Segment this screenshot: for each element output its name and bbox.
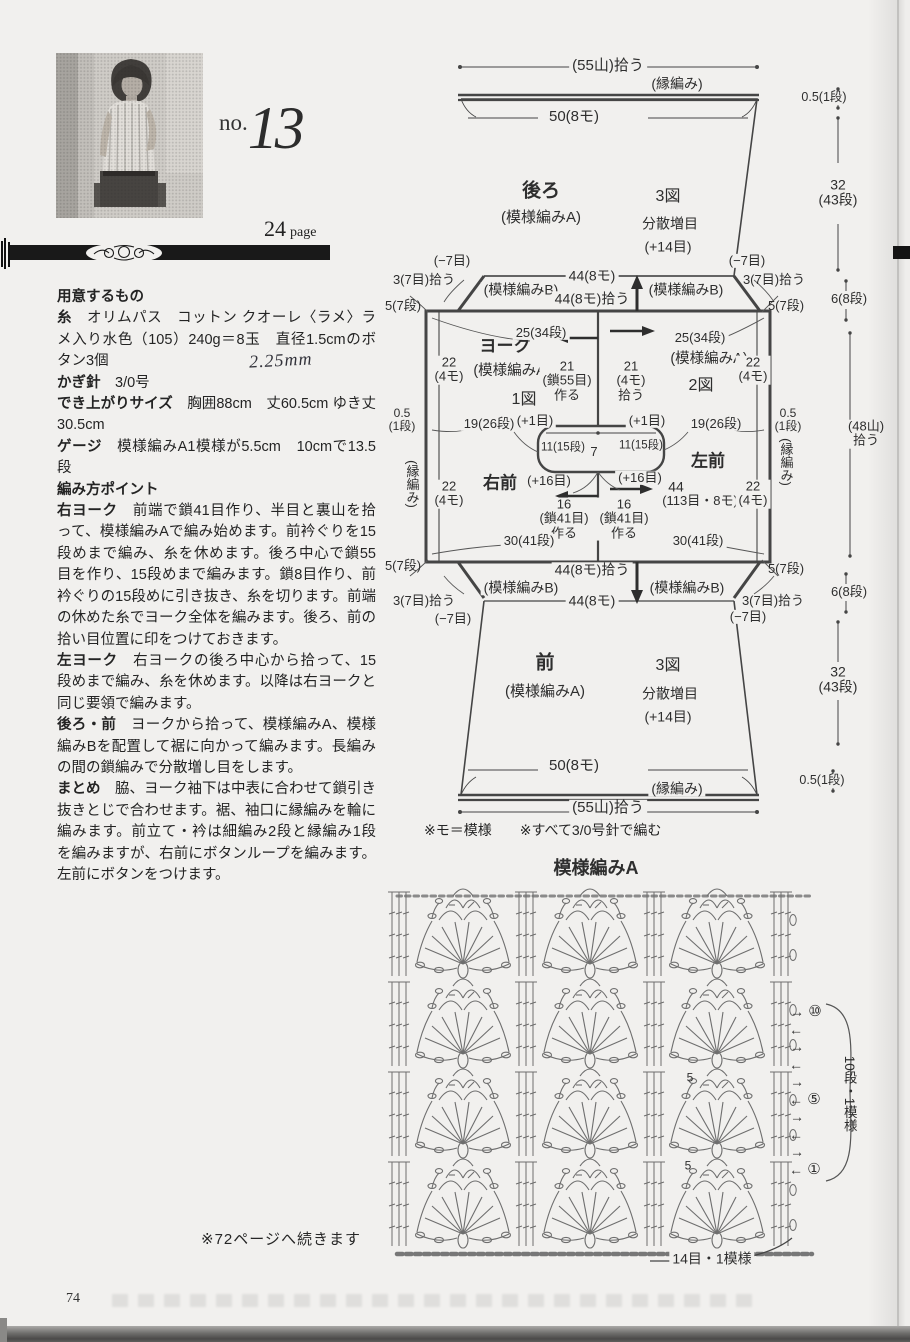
schematic-label: (模様編みB): [647, 580, 728, 595]
schematic-label: 3(7目)拾う: [743, 273, 805, 287]
page-right-edge: [899, 0, 910, 1342]
schematic-label: 分散増目: [642, 686, 698, 701]
schematic-label: 30(41段): [501, 534, 558, 548]
schematic-label: (−7目): [431, 254, 473, 268]
schematic-label: (−7目): [726, 254, 768, 268]
edge-index-tab: [893, 246, 910, 259]
magazine-page: no.13 24 page 用意するもの糸 オリムパス コットン クオーレ〈ラメ…: [0, 0, 910, 1342]
schematic-label: 22 (4モ): [432, 356, 467, 385]
schematic-label: (模様編みA): [505, 684, 585, 701]
schematic-label: (縁編み): [648, 76, 705, 91]
schematic-label: ヨーク: [480, 338, 531, 357]
schematic-label: (縁編み): [648, 781, 705, 796]
schematic-label: 3図: [656, 188, 681, 206]
schematic-label: 右前: [483, 475, 517, 494]
stitch-chart-title: 模様編みA: [554, 859, 639, 879]
schematic-label: 11(15段): [541, 442, 585, 455]
schematic-label: 30(41段): [670, 534, 727, 548]
schematic-label: 44(8モ)拾う: [552, 291, 633, 306]
schematic-label: 3(7目)拾う: [742, 594, 804, 608]
schematic-label: (113目・8モ): [662, 494, 738, 508]
schematic-label: 3(7目)拾う: [393, 594, 455, 608]
schematic-label: (+16目): [524, 474, 574, 488]
schematic-label: 後ろ: [522, 182, 560, 203]
schematic-label: 32 (43段): [816, 665, 861, 696]
schematic-label: 分散増目: [642, 216, 698, 231]
schematic-label: 44(8モ): [566, 593, 619, 608]
schematic-label: 44(8モ)拾う: [552, 562, 633, 577]
row-direction-arrow: →: [790, 1039, 804, 1054]
schematic-label: (+16目): [615, 471, 665, 485]
schematic-label: (模様編みB): [481, 282, 562, 297]
show-through-ghost-text: [112, 1294, 762, 1307]
schematic-label: 0.5(1段): [796, 774, 847, 788]
schematic-label: 5(7段): [768, 562, 804, 576]
schematic-label: 21 (4モ) 拾う: [614, 360, 649, 403]
chart-bottom-label: 14目・1模様: [669, 1251, 754, 1266]
schematic-label: 16 (鎖41目) 作る: [536, 498, 591, 541]
schematic-label: (55山)拾う: [569, 800, 647, 817]
row-direction-arrow: ←: [789, 1057, 803, 1072]
schematic-label: 11(15段): [619, 440, 663, 453]
schematic-label: (模様編みB): [481, 580, 562, 595]
schematic-label: 0.5(1段): [798, 91, 849, 105]
schematic-label: 25(34段): [513, 326, 570, 340]
scan-bottom-edge: [0, 1326, 910, 1342]
schematic-label: 7: [590, 445, 597, 459]
schematic-label: 6(8段): [828, 292, 870, 306]
schematic-label: (+1目): [514, 414, 556, 428]
schematic-label: (模様編みA): [473, 364, 550, 380]
row-direction-arrow: →: [790, 1144, 804, 1159]
schematic-label: 25(34段): [672, 331, 729, 345]
schematic-label: 22 (4モ): [736, 356, 771, 385]
schematic-label: (−7目): [727, 610, 769, 624]
schematic-label: (+1目): [626, 414, 668, 428]
schematic-label: 32 (43段): [816, 178, 861, 209]
row-direction-arrow: →: [790, 1004, 804, 1019]
schematic-label: (模様編みA): [670, 352, 747, 368]
schematic-label: 50(8モ): [546, 758, 602, 775]
schematic-label: (+14目): [644, 709, 691, 724]
schematic-label: 22 (4モ): [736, 480, 771, 509]
schematic-label: 19(26段): [688, 417, 745, 431]
row-direction-arrow: →: [790, 1074, 804, 1089]
schematic-label: 21 (鎖55目) 作る: [539, 360, 594, 403]
schematic-label: 2図: [689, 377, 714, 395]
schematic-label: (縁編み): [406, 460, 419, 508]
row-direction-arrow: ←: [789, 1092, 803, 1107]
page-edge-shadow: [868, 0, 897, 1342]
schematic-label: 左前: [691, 453, 725, 472]
page-number: 74: [66, 1291, 80, 1307]
schematic-label: 44: [668, 479, 684, 494]
schematic-label: 5(7段): [385, 299, 421, 313]
schematic-label: 1図: [512, 391, 537, 409]
continuation-note: ※72ページへ続きます: [201, 1228, 361, 1249]
schematic-label: 0.5 (1段): [775, 407, 802, 433]
schematic-label: 50(8モ): [546, 109, 602, 126]
schematic-label: 5(7段): [385, 559, 421, 573]
scan-corner-mark: [0, 1318, 7, 1342]
schematic-label: (縁編み): [780, 438, 793, 486]
diagram-label-layer: (55山)拾う(縁編み)50(8モ)後ろ(模様編みA)3図分散増目(+14目)0…: [0, 0, 910, 1342]
schematic-label: 前: [535, 654, 554, 675]
schematic-label: 16 (鎖41目) 作る: [596, 498, 651, 541]
schematic-label: 6(8段): [828, 585, 870, 599]
row-direction-arrow: ←: [789, 1022, 803, 1037]
row-direction-arrow: →: [790, 1109, 804, 1124]
schematic-label: 3図: [656, 657, 681, 675]
schematic-label: 5(7段): [768, 299, 804, 313]
chart-stitch-count: 5: [685, 1159, 692, 1172]
schematic-label: 19(26段): [461, 417, 518, 431]
row-number-5: ⑤: [807, 1092, 820, 1109]
chart-stitch-count: 5: [687, 1071, 694, 1084]
schematic-label: (模様編みB): [646, 282, 727, 297]
schematic-label: 3(7目)拾う: [393, 273, 455, 287]
row-number-1: ①: [807, 1162, 820, 1179]
chart-side-label: 10段・1模様: [842, 1056, 856, 1133]
row-direction-arrow: ←: [789, 1127, 803, 1142]
schematic-label: (模様編みA): [501, 210, 581, 227]
schematic-label: (55山)拾う: [569, 58, 647, 75]
schematic-label: 0.5 (1段): [389, 407, 416, 433]
row-number-10: ⑩: [808, 1004, 821, 1021]
schematic-label: (+14目): [644, 239, 691, 254]
row-direction-arrow: ←: [789, 1162, 803, 1177]
schematic-label: 44(8モ): [566, 268, 619, 283]
schematic-label: 22 (4モ): [432, 480, 467, 509]
schematic-label: (−7目): [432, 612, 474, 626]
